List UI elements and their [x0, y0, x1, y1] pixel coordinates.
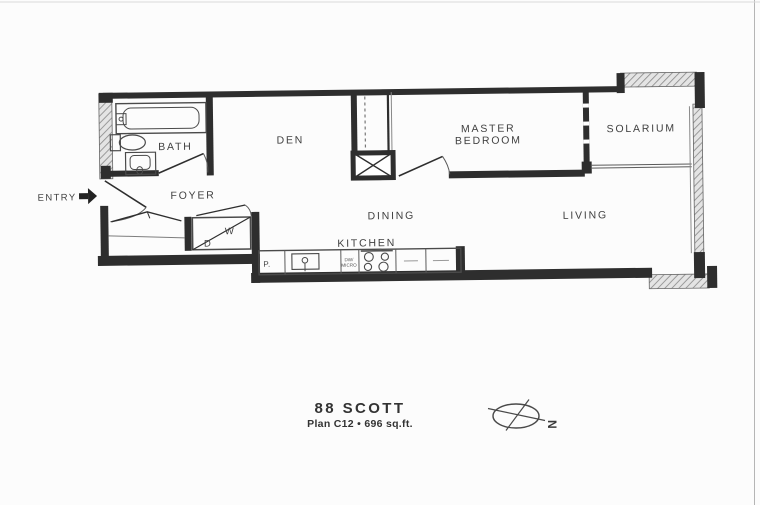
entry-door: [105, 180, 147, 222]
master-door: [399, 156, 450, 176]
room-label-den: DEN: [276, 134, 304, 146]
floor-plan-sheet: BATH DEN MASTER BEDROOM SOLARIUM ENTRY F…: [0, 0, 760, 505]
room-label-master-2: BEDROOM: [455, 134, 522, 147]
stove-icon: [361, 251, 393, 272]
bathtub-icon: [116, 103, 206, 134]
room-label-foyer: FOYER: [170, 189, 215, 202]
plan-title: 88 SCOTT: [315, 400, 406, 417]
closet-rod: [365, 96, 366, 150]
plan-group: BATH DEN MASTER BEDROOM SOLARIUM ENTRY F…: [36, 72, 717, 297]
room-label-solarium: SOLARIUM: [607, 122, 676, 135]
washer-label: W: [225, 226, 235, 237]
kitchen-sink-icon: [292, 254, 319, 272]
room-label-entry: ENTRY: [37, 192, 76, 204]
floor-plan: BATH DEN MASTER BEDROOM SOLARIUM ENTRY F…: [0, 0, 760, 505]
dryer-label: D: [204, 238, 212, 249]
room-label-living: LIVING: [563, 209, 608, 222]
bath-door: [159, 154, 208, 174]
room-label-kitchen: KITCHEN: [337, 237, 396, 250]
pantry-label: P.: [263, 260, 270, 269]
foyer-closet: [108, 211, 184, 238]
room-label-bath: BATH: [158, 141, 193, 153]
compass-icon: N: [488, 400, 559, 431]
walls: [96, 72, 718, 296]
title-block: 88 SCOTT Plan C12 • 696 sq.ft.: [307, 400, 413, 430]
dw-label-2: MICRO: [341, 263, 357, 268]
room-label-dining: DINING: [367, 210, 415, 223]
solarium-partition: [581, 88, 693, 254]
shaft-box: [353, 152, 394, 179]
entry-arrow-icon: [79, 188, 97, 204]
plan-subtitle: Plan C12 • 696 sq.ft.: [307, 418, 413, 430]
dw-label-1: DW/: [344, 257, 354, 262]
laundry-closet: [192, 205, 252, 250]
toilet-icon: [110, 134, 145, 150]
room-label-master-1: MASTER: [461, 122, 516, 135]
compass-north-label: N: [545, 420, 559, 429]
